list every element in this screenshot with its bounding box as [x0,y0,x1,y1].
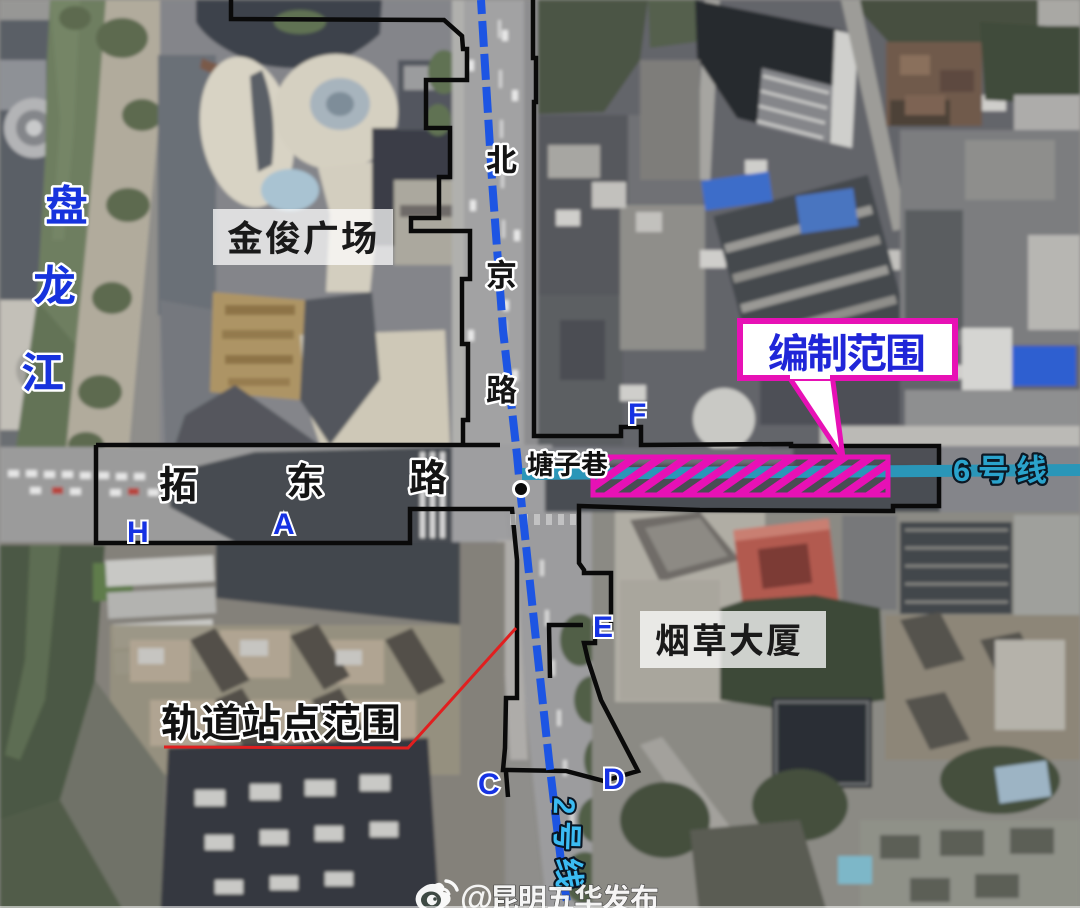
svg-text:E: E [593,611,613,644]
svg-text:6: 6 [953,453,970,488]
svg-text:C: C [478,768,500,801]
svg-text:A: A [273,508,295,541]
svg-text:H: H [127,516,149,549]
svg-text:2: 2 [547,797,581,815]
svg-text:D: D [603,763,625,796]
svg-text:F: F [628,398,646,431]
